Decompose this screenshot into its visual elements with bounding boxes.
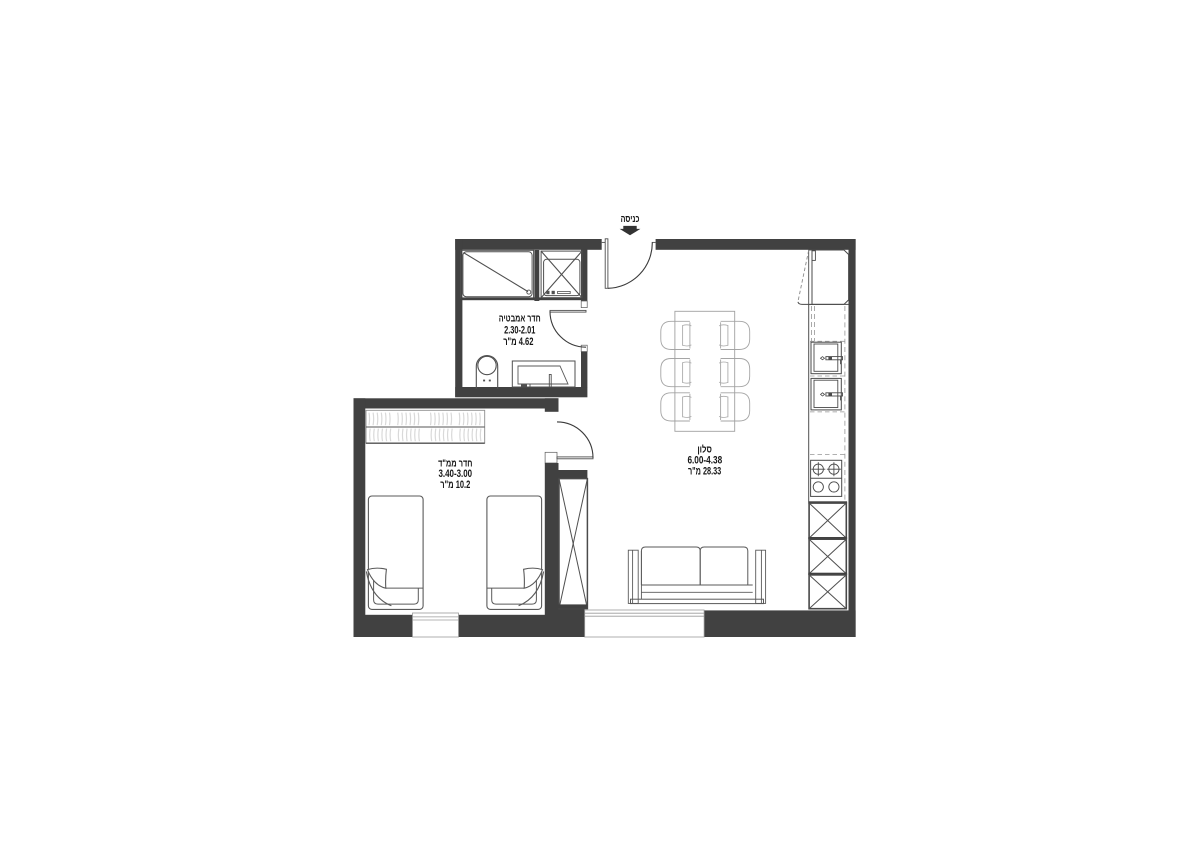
svg-text:28.33 מ"ר: 28.33 מ"ר — [688, 466, 721, 478]
svg-text:חדר אמבטיה: חדר אמבטיה — [499, 313, 541, 324]
svg-text:2.30-2.01: 2.30-2.01 — [504, 324, 535, 336]
svg-text:כניסה: כניסה — [621, 214, 640, 225]
svg-text:4.62 מ"ר: 4.62 מ"ר — [503, 336, 533, 348]
svg-text:10.2 מ"ר: 10.2 מ"ר — [440, 479, 470, 491]
svg-text:סלון: סלון — [697, 443, 712, 455]
